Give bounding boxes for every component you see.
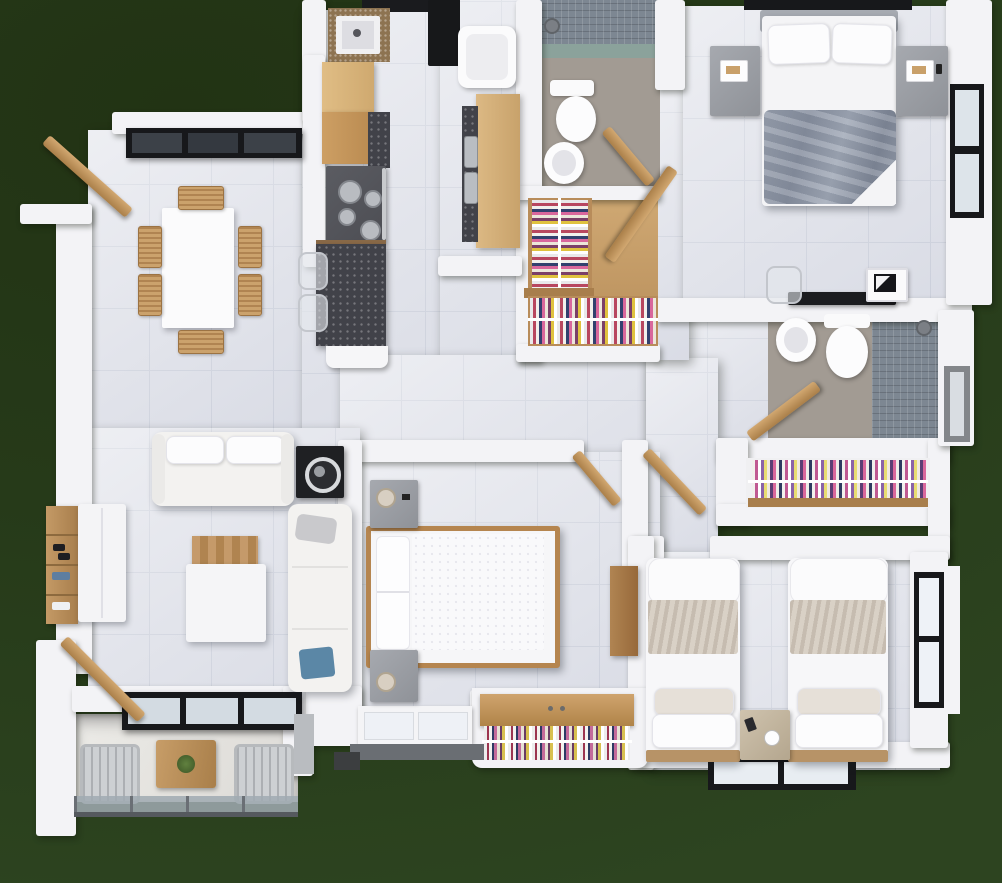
nightstand-lamp [906, 60, 934, 82]
coffee-table-wood-tray [192, 536, 258, 566]
sideboard [78, 504, 126, 622]
bedroom3-east-window [914, 572, 944, 708]
utility-counter-wood [476, 94, 520, 248]
wall-closet1-south [516, 344, 660, 362]
bedroom2-wardrobe-rod [482, 740, 632, 743]
stored-item-blue [52, 572, 70, 580]
counter-end-white [326, 346, 388, 368]
phone [744, 717, 757, 732]
toilet-bowl [556, 96, 596, 142]
chaise-seam [292, 628, 348, 630]
balcony-railing-edge [74, 812, 298, 817]
bed-footboard-wood [646, 750, 740, 762]
monitor-glyph [876, 276, 890, 290]
kitchen-counter-dark [368, 112, 390, 168]
master-nightstand-left [710, 46, 760, 116]
window-pane [364, 712, 414, 740]
closet1-rod2 [528, 318, 658, 321]
master-duvet-fold [850, 158, 896, 204]
wall-balcony-west [36, 640, 76, 836]
bedroom3-east-window-sill [946, 566, 960, 714]
bay-window-ledge [350, 744, 486, 760]
shoes [58, 553, 70, 560]
utility-sink [464, 172, 478, 204]
balcony-table [156, 740, 216, 788]
dining-chair [178, 330, 224, 354]
wardrobe-knob [548, 706, 553, 711]
lounge-chair [80, 744, 140, 804]
faucet [353, 29, 361, 37]
window-pane [188, 133, 238, 153]
bathroom2-toilet-bowl [826, 326, 868, 378]
dining-chair [238, 274, 262, 316]
utility-sink [464, 136, 478, 168]
refrigerator [428, 0, 460, 66]
dining-chair [238, 226, 262, 268]
master-nightstand-right [896, 46, 948, 116]
bidet-basin [784, 327, 808, 353]
window-pane [714, 762, 778, 784]
duvet-fold [790, 558, 888, 604]
bar-stool [298, 294, 328, 332]
sofa-back-cushion [226, 436, 284, 464]
stove-burner [338, 180, 362, 204]
wardrobe-knob [560, 706, 565, 711]
clock [764, 730, 780, 746]
washer-lid [466, 34, 508, 80]
dining-table [162, 208, 234, 328]
kitchen-sink [336, 16, 380, 54]
glass-pane [244, 698, 296, 724]
bed-pillow [652, 714, 736, 748]
window-pane [418, 712, 468, 740]
bidet-basin [552, 150, 576, 176]
monitor [866, 268, 908, 302]
speaker-cone [314, 466, 325, 477]
closet1-hanging-clothes2 [530, 298, 656, 344]
bathroom2-bidet [776, 318, 816, 362]
lamp-shade [912, 66, 926, 74]
wall-west-stub [20, 204, 92, 224]
shower-head [916, 320, 932, 336]
toilet-tank [550, 80, 594, 96]
pillow-divider [377, 591, 409, 593]
ac-unit [334, 752, 360, 770]
master-east-window [950, 84, 984, 218]
blanket [648, 600, 738, 654]
bed-pillow [797, 688, 881, 716]
bed-pillow [795, 714, 883, 748]
window-pane [132, 133, 182, 153]
chaise-seam [292, 566, 348, 568]
coffee-table [186, 564, 266, 642]
rack-shelf-line [46, 534, 78, 536]
closet1-rod [558, 198, 561, 290]
service-panel [294, 714, 314, 774]
stove [326, 166, 386, 244]
bedroom2-nightstand-bottom [370, 650, 418, 702]
kitchen-cabinet-upper [322, 62, 374, 114]
wall-master-west [655, 0, 685, 90]
closet2-rod [748, 480, 928, 483]
window-pane [950, 372, 964, 436]
media-speaker-unit [296, 446, 344, 498]
bathroom2-window [944, 366, 970, 442]
nightstand-lamp [376, 488, 396, 508]
shower-accent-band [540, 44, 660, 58]
bedroom2-wardrobe-top [480, 694, 634, 726]
rack-shelf-line [46, 594, 78, 596]
nightstand-lamp [376, 672, 396, 692]
master-pillow [767, 23, 830, 65]
bedroom2-nightstand-top [370, 480, 418, 528]
bedroom2-wardrobe-clothes [484, 726, 630, 760]
remote [402, 494, 410, 500]
nightstand-lamp [720, 60, 748, 82]
living-sofa [152, 432, 294, 506]
duvet-fold [648, 558, 740, 604]
bed-footboard-wood [788, 750, 888, 762]
sideboard-seam [101, 508, 103, 618]
living-chaise-sofa [288, 504, 352, 692]
twin-bed-right [788, 558, 888, 762]
shoe-rack-wood [46, 506, 78, 624]
window-pane [919, 578, 939, 636]
window-pane [244, 133, 296, 153]
balcony-sliding-door [122, 692, 302, 730]
blanket [790, 600, 886, 654]
dining-window [126, 128, 302, 158]
wall-bedroom2-north [352, 440, 584, 462]
rack-shelf-line [46, 564, 78, 566]
shoes [53, 544, 65, 551]
stove-chrome-edge [382, 168, 386, 240]
kitchen-cabinet-lower [322, 112, 374, 164]
lounge-chair [234, 744, 294, 804]
stove-burner [360, 220, 381, 241]
bedroom2-shelf [610, 566, 638, 656]
dining-chair [138, 226, 162, 268]
window-pane [955, 154, 979, 212]
dining-chair [178, 186, 224, 210]
blue-pillow [299, 646, 336, 679]
desk-chair [766, 266, 802, 304]
glass-pane [186, 698, 238, 724]
window-pane [919, 642, 939, 702]
phone [936, 64, 942, 74]
bed-pillow [654, 688, 734, 716]
sofa-armrest [281, 434, 294, 504]
plant [177, 755, 195, 773]
closet2-shelf [748, 498, 928, 507]
twin-bed-left [646, 558, 740, 762]
bedroom2-duvet [412, 534, 544, 650]
wall-utility-south [438, 256, 522, 276]
shower-head [544, 18, 560, 34]
window-pane [955, 90, 979, 146]
bedroom2-bay-window [358, 706, 472, 744]
master-top-window [744, 0, 912, 10]
floor-plan-render [0, 0, 1002, 883]
sofa-back-cushion [166, 436, 224, 464]
bidet [544, 142, 584, 184]
stove-burner [338, 208, 356, 226]
sofa-armrest [152, 434, 165, 504]
dining-chair [138, 274, 162, 316]
twin-nightstand [740, 710, 790, 760]
stored-item-white [52, 602, 70, 610]
master-pillow [831, 23, 892, 65]
window-pane [784, 762, 848, 784]
washing-machine [458, 26, 516, 88]
gray-pillow [294, 513, 337, 544]
bar-stool [298, 252, 328, 290]
wall-bay-left [306, 686, 362, 746]
lamp-shade [726, 66, 740, 74]
bedroom2-pillows [376, 536, 410, 650]
stove-burner [364, 190, 382, 208]
